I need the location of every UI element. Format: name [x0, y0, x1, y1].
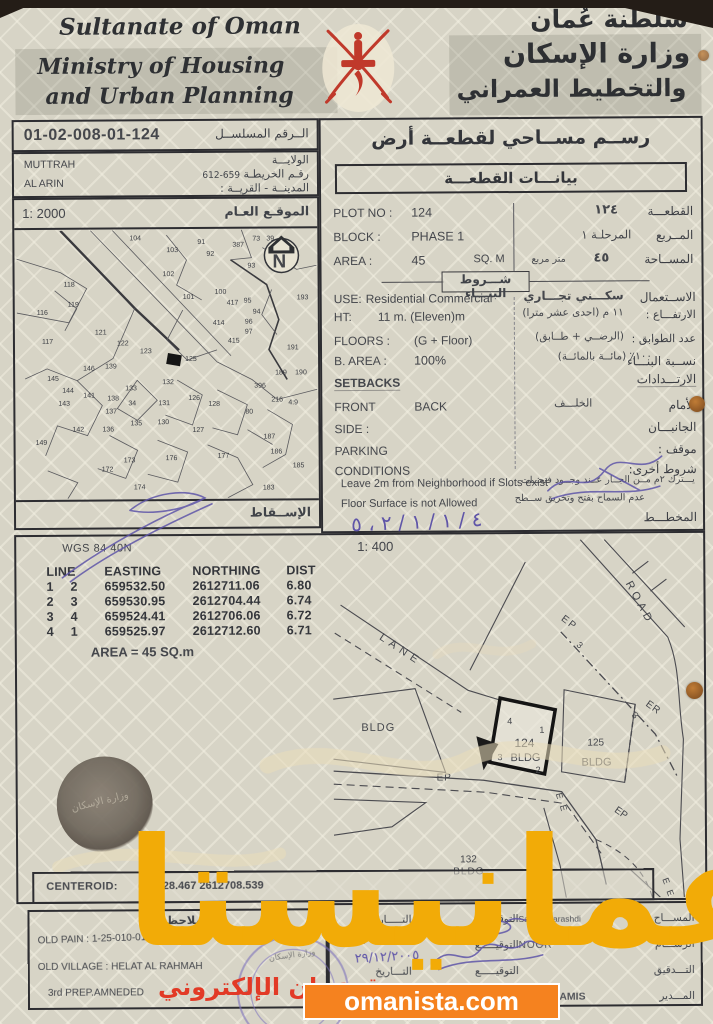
- banner-text: omanista.com: [344, 986, 519, 1017]
- punch-hole-3: [698, 50, 709, 61]
- scan-edge-top: [0, 0, 713, 40]
- scanned-survey-document: Sultanate of Oman Ministry of Housing an…: [0, 0, 713, 1024]
- punch-hole-2: [686, 682, 703, 699]
- watermark-big-text: عمانيستا: [126, 810, 713, 978]
- punch-hole-1: [689, 396, 705, 412]
- watermark-site-banner: omanista.com: [303, 983, 560, 1020]
